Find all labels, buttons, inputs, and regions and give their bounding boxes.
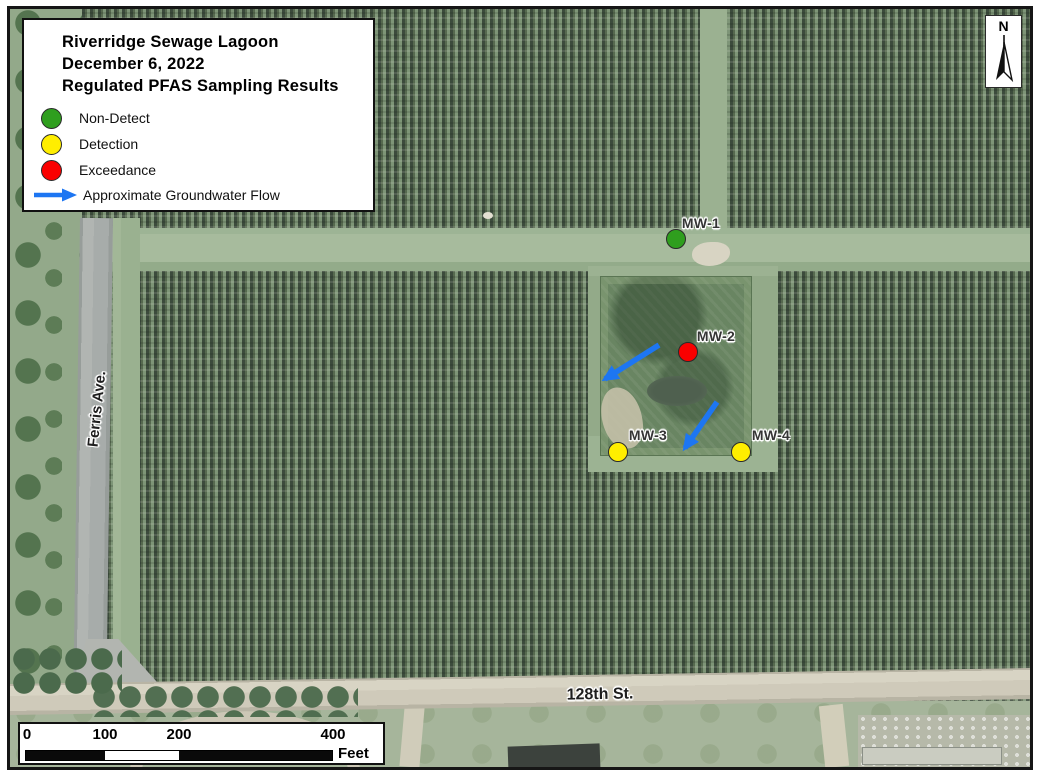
non-detect-dot-icon xyxy=(41,108,62,129)
legend-item-label: Detection xyxy=(79,136,138,152)
building-dark-roof xyxy=(508,743,601,767)
well-label-mw-2: MW-2 xyxy=(697,328,735,344)
well-label-mw-4: MW-4 xyxy=(752,427,790,443)
map-date: December 6, 2022 xyxy=(62,53,339,75)
road-shoulder-grass xyxy=(113,218,140,674)
well-marker-mw-4 xyxy=(731,442,751,462)
map-canvas: MW-1 MW-2 MW-3 MW-4 Ferris Ave. 128th St… xyxy=(10,9,1030,767)
legend-item-non-detect: Non-Detect xyxy=(24,105,373,131)
scale-tick-0: 0 xyxy=(23,726,31,743)
legend-item-label: Exceedance xyxy=(79,162,156,178)
well-marker-mw-1 xyxy=(666,229,686,249)
north-arrow-icon xyxy=(991,34,1017,84)
map-subtitle: Regulated PFAS Sampling Results xyxy=(62,75,339,97)
scale-bar: 0 100 200 400 Feet xyxy=(18,722,385,765)
scale-tick-200: 200 xyxy=(166,726,191,743)
well-label-mw-1: MW-1 xyxy=(682,215,720,231)
north-arrow: N xyxy=(985,15,1022,88)
scale-bar-segment xyxy=(105,751,179,760)
detection-dot-icon xyxy=(41,134,62,155)
well-marker-mw-2 xyxy=(678,342,698,362)
map-frame: MW-1 MW-2 MW-3 MW-4 Ferris Ave. 128th St… xyxy=(7,6,1033,770)
exceedance-dot-icon xyxy=(41,160,62,181)
well-label-mw-3: MW-3 xyxy=(629,427,667,443)
scale-tick-100: 100 xyxy=(92,726,117,743)
legend-item-label: Non-Detect xyxy=(79,110,150,126)
street-label-128th-st: 128th St. xyxy=(567,685,634,704)
legend-item-label: Approximate Groundwater Flow xyxy=(83,187,280,203)
legend-items: Non-Detect Detection Exceedance Approxim… xyxy=(24,105,373,207)
well-marker-mw-3 xyxy=(608,442,628,462)
scale-bar-segment xyxy=(26,751,105,760)
scale-bar-track xyxy=(25,750,333,761)
dirt-patch-small xyxy=(483,212,493,219)
map-title: Riverridge Sewage Lagoon xyxy=(62,31,339,53)
legend-title: Riverridge Sewage Lagoon December 6, 202… xyxy=(62,31,339,97)
orchard-lane xyxy=(700,9,727,233)
tree-canopy xyxy=(90,685,358,717)
scale-unit-label: Feet xyxy=(338,745,369,762)
legend-item-exceedance: Exceedance xyxy=(24,157,373,183)
legend-item-detection: Detection xyxy=(24,131,373,157)
building-light-roof xyxy=(862,747,1002,765)
flow-arrow-icon xyxy=(32,188,78,202)
legend: Riverridge Sewage Lagoon December 6, 202… xyxy=(22,18,375,212)
north-label: N xyxy=(986,18,1021,34)
grass-access-strip xyxy=(110,228,1030,271)
scale-tick-400: 400 xyxy=(320,726,345,743)
driveway xyxy=(399,706,424,767)
scale-bar-segment xyxy=(179,751,332,760)
lagoon-pond xyxy=(647,376,707,406)
driveway xyxy=(819,704,849,767)
legend-item-groundwater-flow: Approximate Groundwater Flow xyxy=(24,183,373,207)
